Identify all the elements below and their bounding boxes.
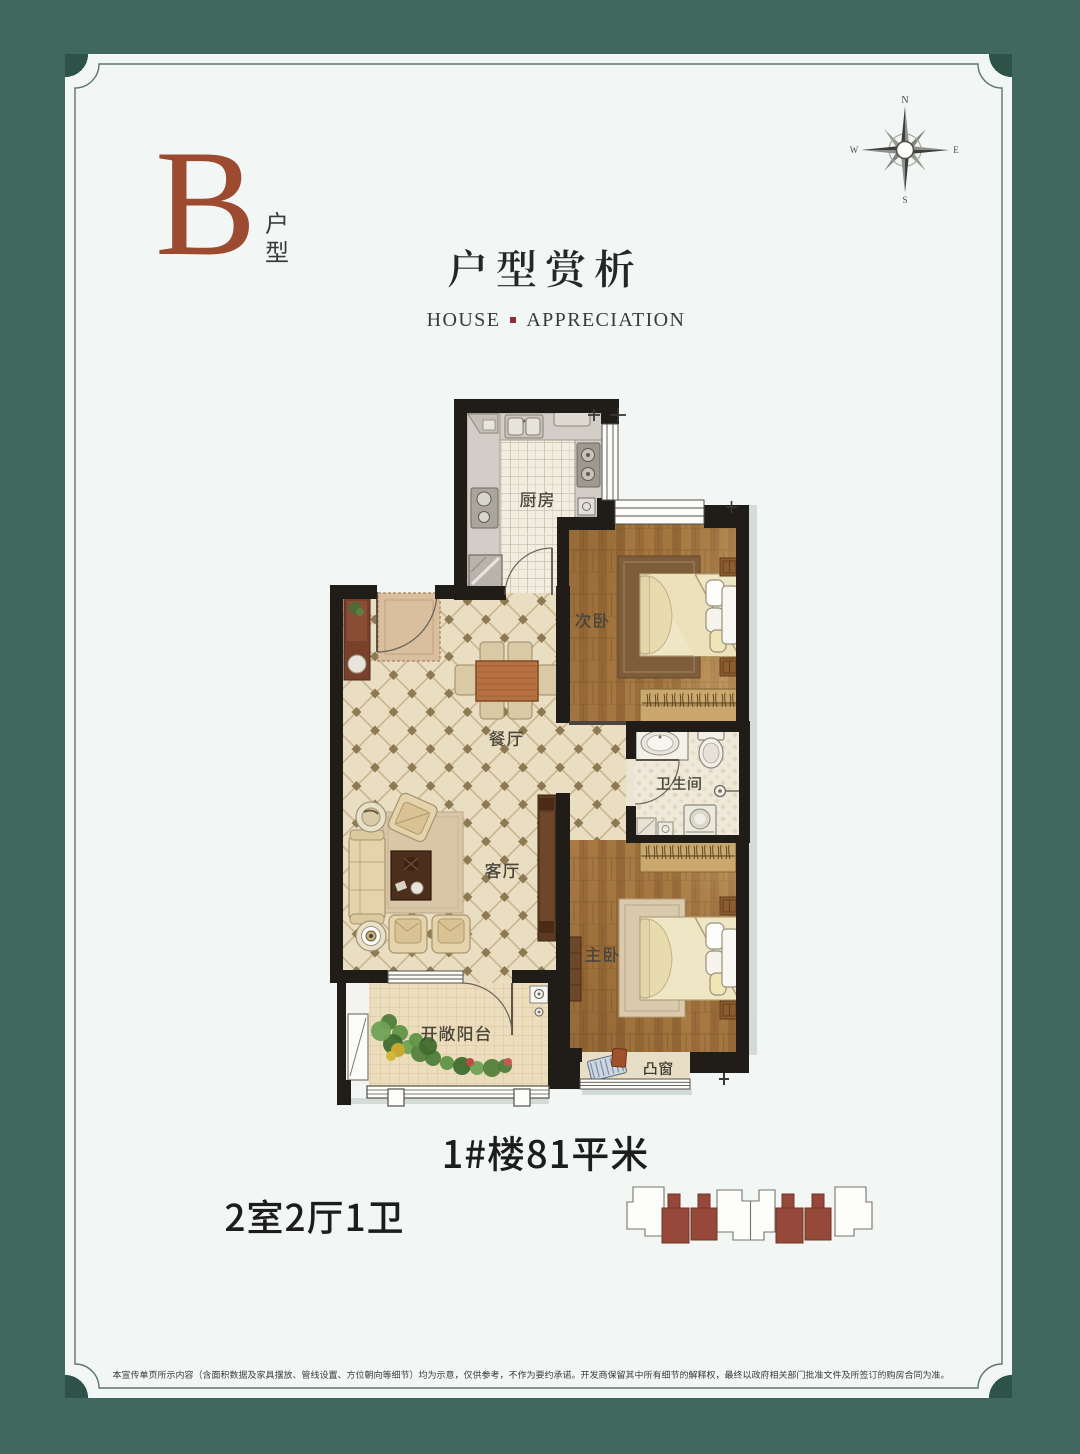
- svg-text:N: N: [901, 95, 908, 106]
- svg-text:W: W: [850, 145, 859, 155]
- svg-text:S: S: [902, 195, 907, 205]
- svg-text:E: E: [953, 145, 959, 155]
